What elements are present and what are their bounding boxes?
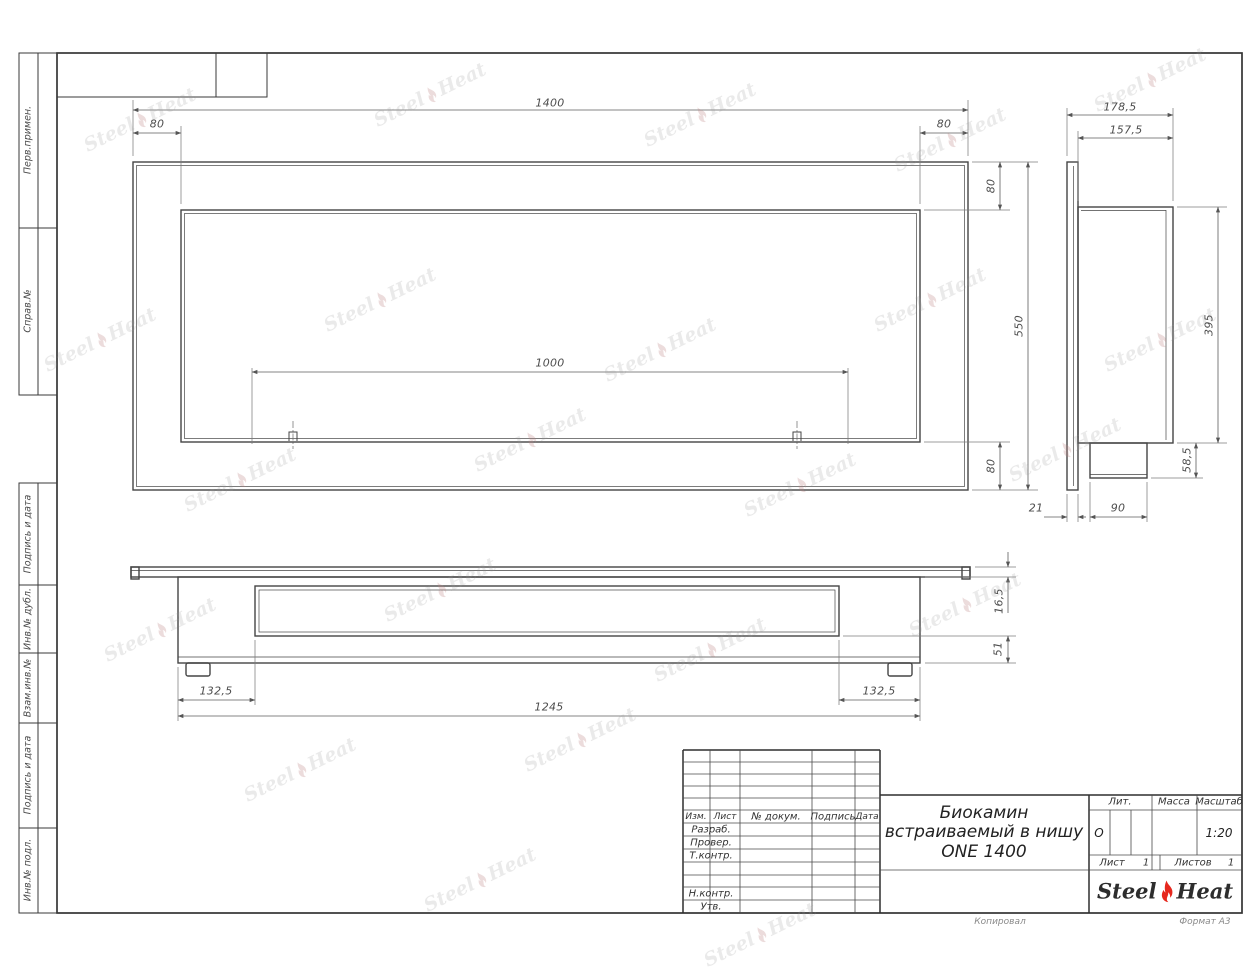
doc-title-line1: Биокамин — [940, 803, 1029, 823]
title-block-scale-value: 1:20 — [1206, 826, 1233, 840]
sidebar-label-inv-dubl: Инв.№ дубл. — [23, 588, 34, 650]
title-block-row-prover: Провер. — [690, 838, 732, 849]
dim-side-depth: 178,5 — [1104, 101, 1137, 114]
sidebar-label-podpis-data-2: Подпись и дата — [23, 736, 34, 815]
title-block-sheets-value: 1 — [1228, 858, 1234, 869]
dim-front-inset-bottom: 80 — [985, 459, 998, 474]
bottom-view — [131, 567, 970, 676]
dim-front-inset-left: 80 — [150, 118, 165, 131]
title-block-col-date: Дата — [855, 812, 878, 822]
dim-side-bottom-height: 58,5 — [1181, 447, 1194, 473]
footer-format: Формат А3 — [1179, 917, 1230, 927]
footer-copied: Копировал — [974, 917, 1025, 927]
title-block-row-utv: Утв. — [701, 902, 722, 913]
title-block-mass-label: Масса — [1158, 797, 1190, 808]
dim-side-body-depth: 157,5 — [1110, 124, 1143, 137]
dim-bottom-flange: 16,5 — [993, 588, 1006, 614]
title-block-sheet-label: Лист — [1099, 858, 1124, 869]
logo-heat-text: Heat — [1177, 879, 1234, 904]
dim-side-body-height: 395 — [1203, 314, 1216, 336]
sidebar-label-vzam-inv: Взам.инв.№ — [23, 659, 34, 717]
dim-side-box-depth: 90 — [1111, 502, 1126, 515]
title-block-col-izm: Изм. — [685, 812, 706, 822]
title-block-sheet-value: 1 — [1143, 858, 1149, 869]
dim-front-height: 550 — [1013, 315, 1026, 337]
bottom-view-double-lines — [131, 571, 970, 658]
title-block-col-sign: Подпись — [811, 812, 856, 823]
dim-front-inset-right: 80 — [937, 118, 952, 131]
dim-front-width: 1400 — [535, 97, 564, 110]
sidebar-label-inv-podl: Инв.№ подл. — [23, 839, 34, 902]
title-block-scale-label: Масштаб — [1195, 797, 1243, 808]
title-block-lit-label: Лит. — [1108, 797, 1131, 808]
extension-lines — [133, 100, 1227, 721]
dim-front-inset-top: 80 — [985, 179, 998, 194]
title-block-col-list: Лист — [714, 812, 737, 822]
dimension-lines — [133, 110, 1218, 716]
title-block-row-razrab: Разраб. — [691, 825, 730, 836]
drawing-sheet: { "watermark": {"steel": "Steel", "heat"… — [0, 0, 1255, 970]
sidebar-label-perv-primen: Перв.примен. — [23, 106, 34, 174]
title-block-col-doc: № докум. — [751, 812, 800, 823]
doc-title-line3: ONE 1400 — [941, 842, 1027, 862]
logo-flame-icon — [1159, 880, 1175, 902]
title-block-lit-value: О — [1094, 826, 1103, 840]
title-block-row-nkontr: Н.контр. — [689, 889, 734, 900]
dim-side-flange-gap: 21 — [1029, 502, 1044, 515]
title-block-sheets-label: Листов — [1174, 858, 1211, 869]
dim-bottom-inset-right: 132,5 — [863, 685, 896, 698]
dim-bottom-leg: 51 — [992, 642, 1005, 657]
title-block-row-tkontr: Т.контр. — [689, 851, 732, 862]
dim-bottom-inset-left: 132,5 — [200, 685, 233, 698]
sidebar-label-podpis-data-1: Подпись и дата — [23, 495, 34, 574]
doc-title-line2: встраиваемый в нишу — [885, 822, 1083, 842]
logo-steel-text: Steel — [1097, 879, 1157, 904]
dim-front-opening: 1000 — [535, 357, 564, 370]
dim-bottom-body-width: 1245 — [534, 701, 563, 714]
sidebar-label-sprav-no: Справ.№ — [23, 289, 34, 332]
corner-stamp — [57, 53, 267, 97]
steelheat-logo: SteelHeat — [1097, 879, 1233, 904]
